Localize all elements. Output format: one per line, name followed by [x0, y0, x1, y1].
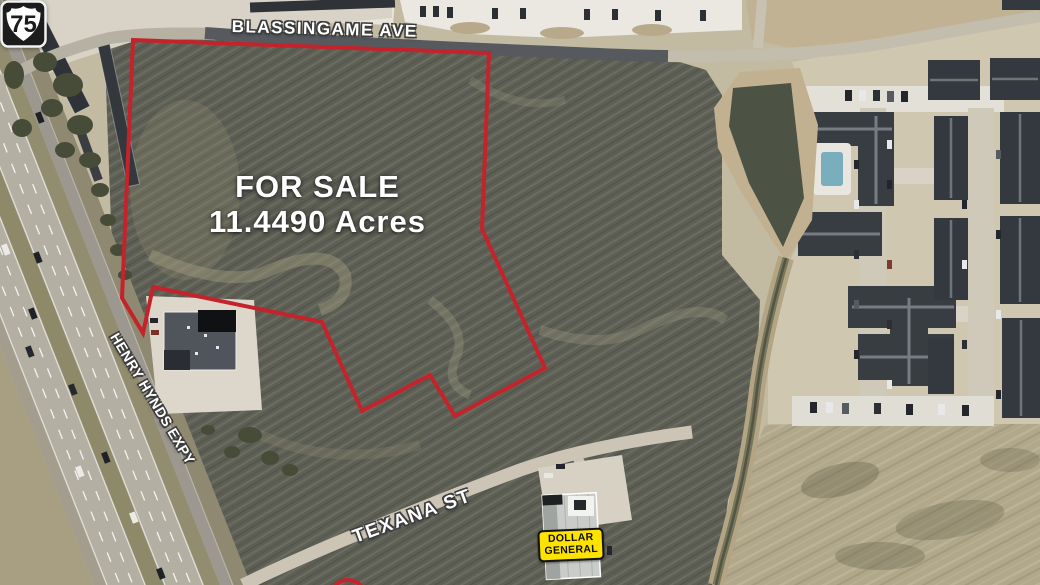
aerial-basemap — [0, 0, 1040, 585]
for-sale-title: FOR SALE — [200, 170, 435, 204]
office-building — [146, 296, 262, 414]
for-sale-label: FOR SALE 11.4490 Acres — [200, 170, 435, 240]
us75-route-shield: 75 — [0, 0, 47, 48]
aerial-map: BLASSINGAME AVE FOR SALE 11.4490 Acres H… — [0, 0, 1040, 585]
southeast-field — [712, 418, 1040, 585]
acreage-label: 11.4490 Acres — [200, 204, 435, 240]
route-number: 75 — [10, 11, 37, 38]
residential-street — [968, 108, 994, 426]
pool — [813, 143, 851, 195]
dg-badge-line2: GENERAL — [540, 543, 602, 557]
dollar-general-badge: DOLLAR GENERAL — [537, 528, 604, 563]
